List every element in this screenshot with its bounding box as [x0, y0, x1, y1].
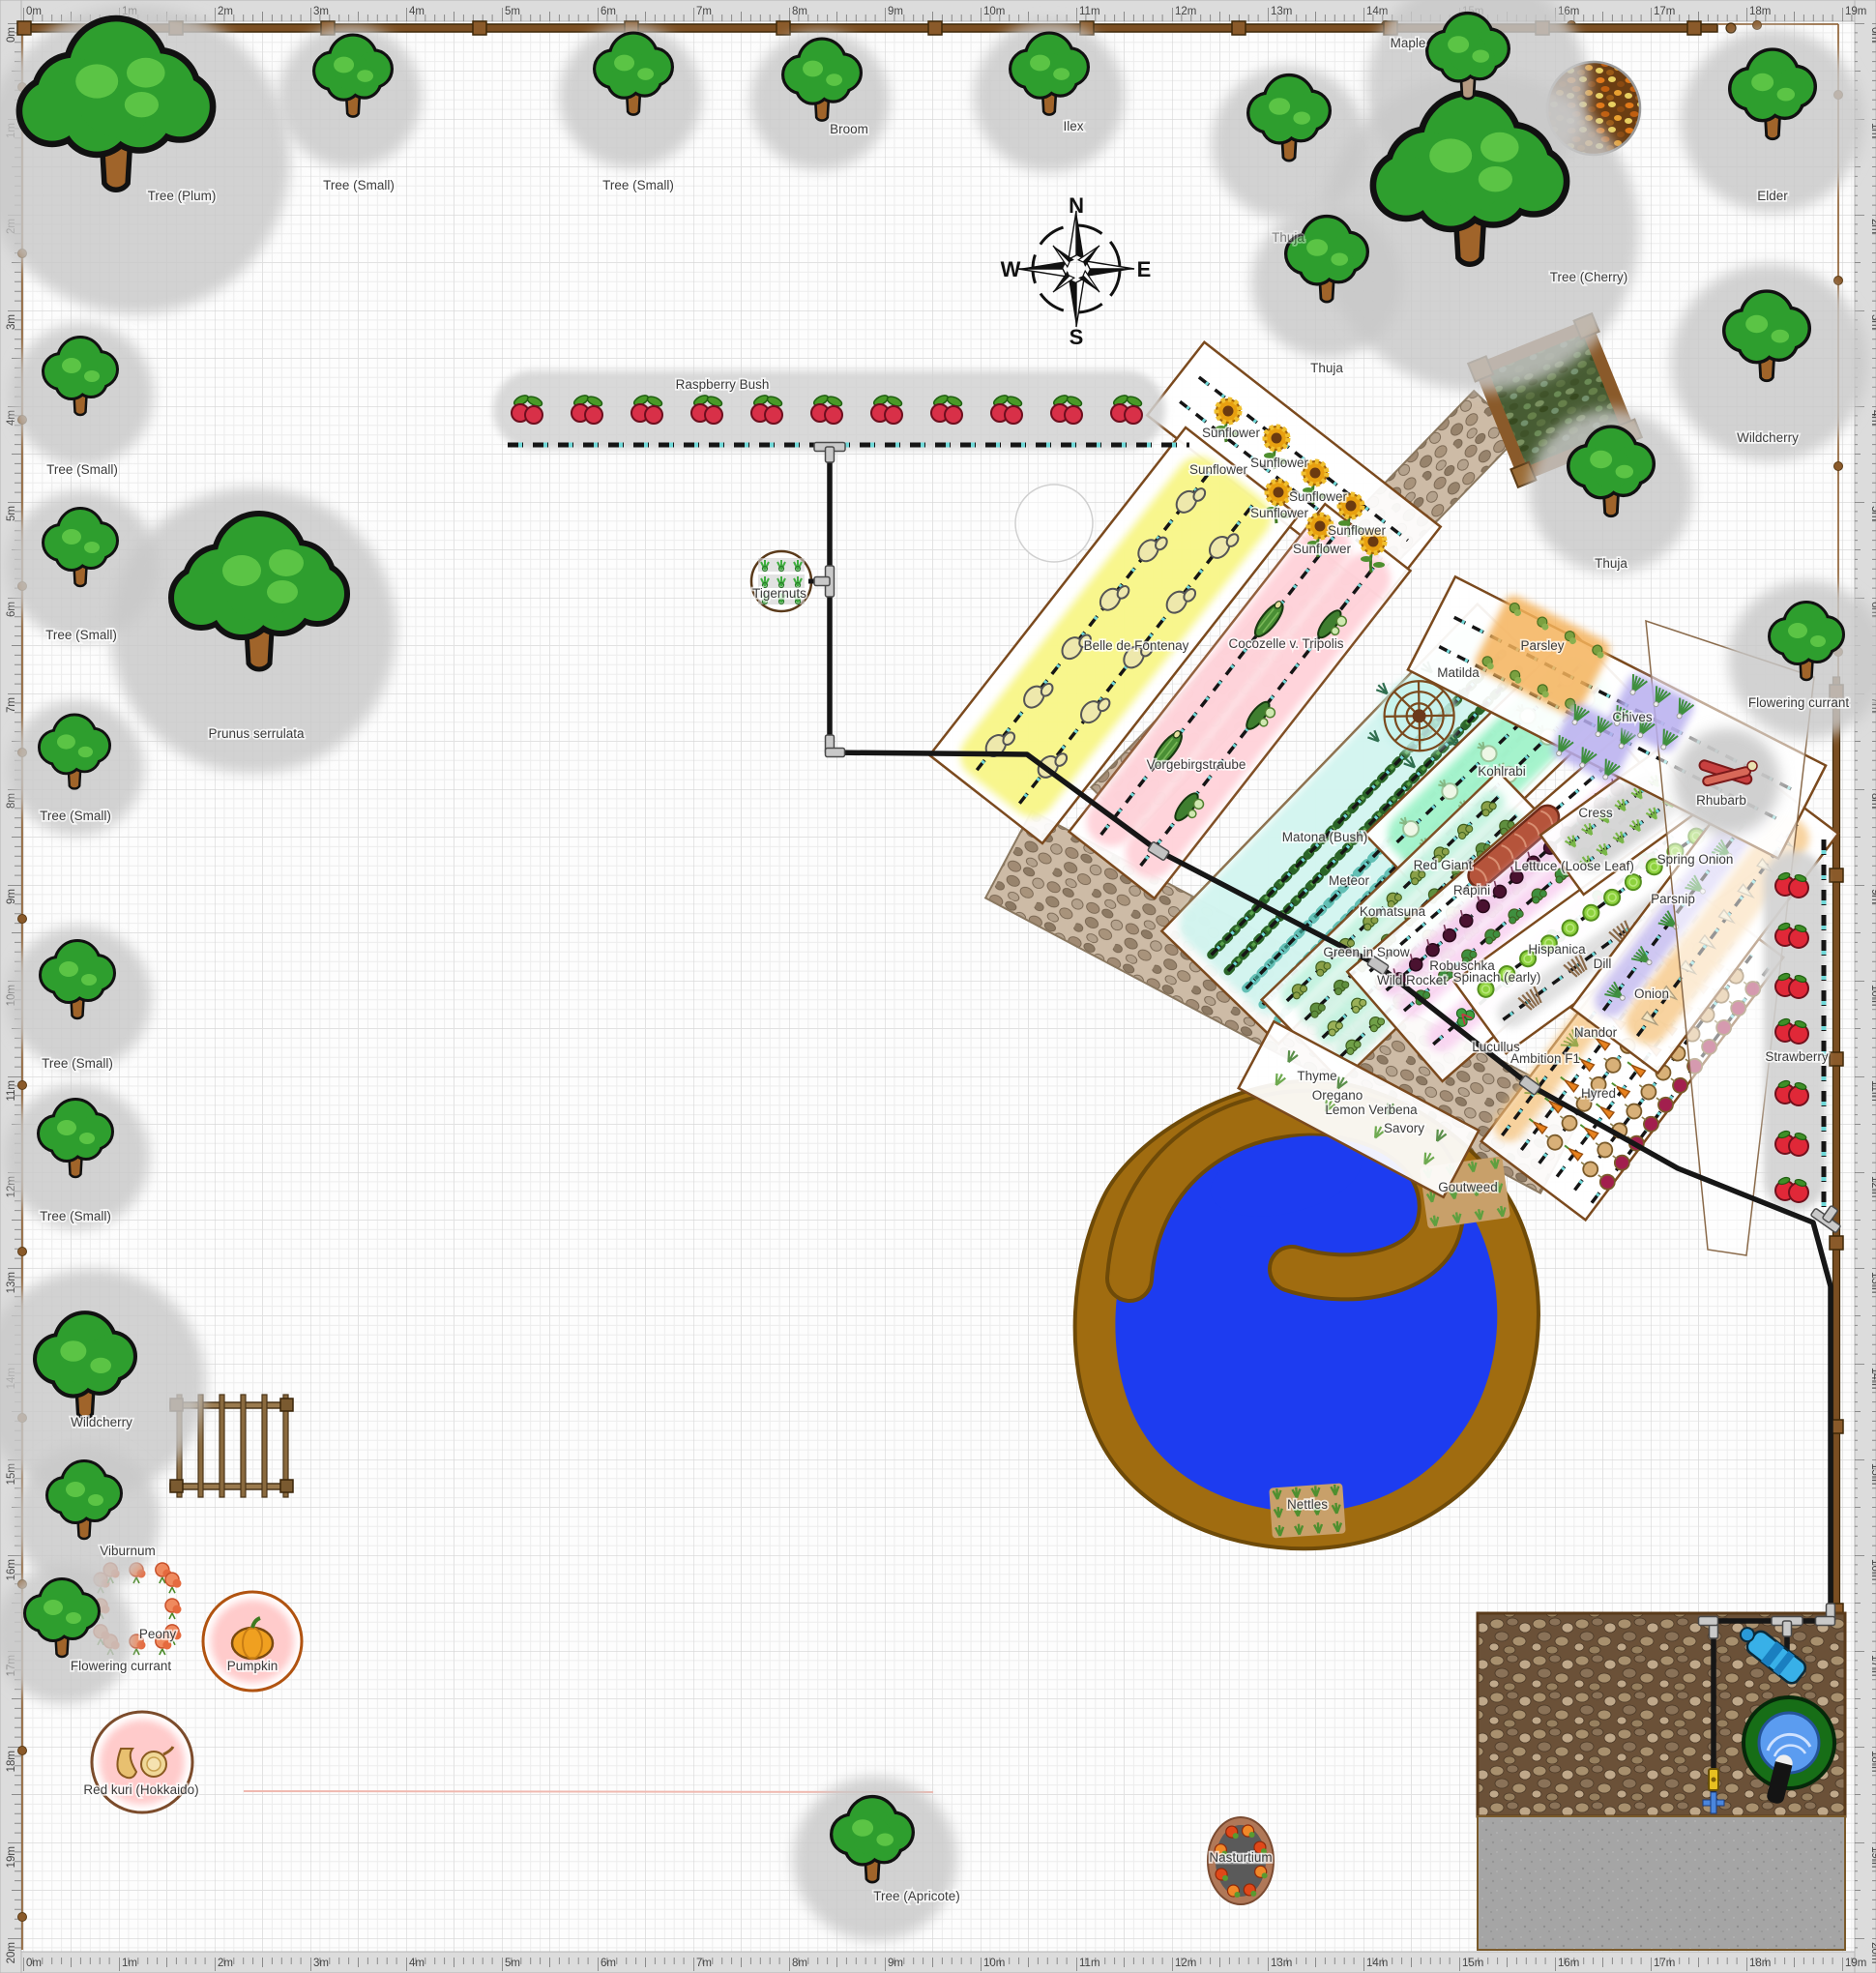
- plan-label: Ilex: [1063, 119, 1083, 133]
- plan-label: Sunflower: [1202, 426, 1261, 440]
- plan-label: Ambition F1: [1510, 1051, 1580, 1066]
- plan-label: Chives: [1612, 710, 1653, 724]
- svg-text:11m: 11m: [6, 1080, 17, 1102]
- plan-label: Thyme: [1297, 1069, 1336, 1083]
- plan-label: Wildcherry: [1737, 430, 1799, 445]
- pumpkin-circle[interactable]: [203, 1592, 302, 1691]
- svg-text:17m: 17m: [1654, 1958, 1675, 1969]
- svg-text:20m: 20m: [1869, 1942, 1876, 1963]
- plan-label: Thuja: [1310, 361, 1343, 375]
- plan-label: Meteor: [1329, 873, 1370, 888]
- svg-text:6m: 6m: [6, 602, 17, 617]
- svg-text:20m: 20m: [6, 1942, 17, 1963]
- plan-label: Thuja: [1272, 230, 1304, 245]
- svg-text:12m: 12m: [1869, 1176, 1876, 1197]
- svg-text:19m: 19m: [1845, 6, 1866, 17]
- plan-label: Komatsuna: [1360, 904, 1426, 919]
- svg-text:7m: 7m: [6, 697, 17, 713]
- svg-text:W: W: [1001, 257, 1021, 281]
- tigernuts-circle[interactable]: [751, 551, 811, 611]
- svg-text:3m: 3m: [313, 6, 329, 17]
- svg-text:19m: 19m: [1845, 1958, 1866, 1969]
- garden-plan: 0m1m2m3m4m5m6m7m8m9m10m11m12m13m14m15m16…: [0, 0, 1876, 1973]
- plan-label: Spring Onion: [1657, 852, 1734, 867]
- plan-label: Viburnum: [100, 1544, 156, 1558]
- svg-text:18m: 18m: [1869, 1751, 1876, 1772]
- svg-text:7m: 7m: [696, 1958, 712, 1969]
- plan-label: Tree (Plum): [148, 189, 217, 203]
- plan-label: Tree (Small): [45, 628, 117, 642]
- plan-label: Sunflower: [1289, 489, 1348, 504]
- rhubarb[interactable]: [1674, 728, 1780, 835]
- plan-label: Cress: [1578, 806, 1613, 820]
- svg-text:9m: 9m: [1869, 889, 1876, 904]
- svg-text:5m: 5m: [6, 506, 17, 521]
- svg-text:10m: 10m: [983, 6, 1005, 17]
- svg-text:13m: 13m: [6, 1272, 17, 1293]
- plan-label: Savory: [1384, 1121, 1424, 1135]
- svg-text:16m: 16m: [1558, 1958, 1579, 1969]
- strawberry-row[interactable]: [1764, 851, 1826, 1211]
- plan-label: Matilda: [1437, 665, 1480, 680]
- svg-text:11m: 11m: [1079, 1958, 1100, 1969]
- plan-label: Rapini: [1453, 883, 1490, 898]
- svg-text:13m: 13m: [1869, 1272, 1876, 1293]
- svg-text:S: S: [1070, 325, 1084, 349]
- svg-text:13m: 13m: [1271, 1958, 1292, 1969]
- svg-text:14m: 14m: [1869, 1368, 1876, 1389]
- svg-text:6m: 6m: [601, 1958, 616, 1969]
- plan-label: Vorgebirgstraube: [1147, 757, 1246, 772]
- svg-text:1m: 1m: [1869, 123, 1876, 138]
- svg-text:N: N: [1069, 193, 1084, 218]
- plan-label: Oregano: [1312, 1088, 1363, 1103]
- svg-text:8m: 8m: [792, 1958, 807, 1969]
- plan-label: Matona (Bush): [1282, 830, 1368, 844]
- plan-label: Dill: [1594, 957, 1612, 971]
- svg-text:8m: 8m: [1869, 793, 1876, 809]
- svg-text:12m: 12m: [1175, 1958, 1196, 1969]
- plan-label: Prunus serrulata: [208, 726, 305, 741]
- plan-label: Wild Rocket: [1377, 973, 1447, 987]
- svg-text:17m: 17m: [1654, 6, 1675, 17]
- plan-label: Broom: [830, 122, 868, 136]
- svg-text:6m: 6m: [601, 6, 616, 17]
- svg-text:0m: 0m: [26, 1958, 42, 1969]
- svg-text:9m: 9m: [888, 6, 903, 17]
- svg-text:2m: 2m: [218, 1958, 233, 1969]
- plan-label: Sunflower: [1250, 506, 1309, 520]
- plan-label: Peony: [139, 1627, 177, 1641]
- plan-label: Green in Snow: [1323, 945, 1410, 959]
- svg-text:2m: 2m: [218, 6, 233, 17]
- svg-text:19m: 19m: [1869, 1846, 1876, 1868]
- plan-label: Lettuce (Loose Leaf): [1514, 859, 1634, 873]
- svg-text:3m: 3m: [1869, 314, 1876, 330]
- plan-label: Tree (Small): [42, 1056, 113, 1071]
- svg-text:18m: 18m: [1749, 1958, 1771, 1969]
- svg-text:4m: 4m: [1869, 410, 1876, 426]
- plan-label: Tree (Small): [323, 178, 395, 192]
- svg-text:13m: 13m: [1271, 6, 1292, 17]
- svg-text:E: E: [1137, 257, 1152, 281]
- svg-text:14m: 14m: [1366, 6, 1388, 17]
- plan-label: Tree (Apricote): [873, 1889, 960, 1903]
- plan-label: Onion: [1634, 986, 1669, 1001]
- plan-label: Maple: [1391, 36, 1426, 50]
- plan-label: Sunflower: [1328, 523, 1387, 538]
- plan-label: Hyred: [1581, 1086, 1616, 1101]
- svg-text:0m: 0m: [6, 27, 17, 43]
- svg-text:5m: 5m: [1869, 506, 1876, 521]
- concrete-slab[interactable]: [1478, 1816, 1845, 1950]
- plan-label: Nandor: [1574, 1025, 1618, 1040]
- svg-text:14m: 14m: [1366, 1958, 1388, 1969]
- svg-text:3m: 3m: [6, 314, 17, 330]
- svg-text:1m: 1m: [122, 1958, 137, 1969]
- svg-text:15m: 15m: [1869, 1463, 1876, 1485]
- plan-label: Nettles: [1287, 1497, 1328, 1512]
- svg-text:16m: 16m: [6, 1559, 17, 1580]
- svg-text:11m: 11m: [1869, 1080, 1876, 1102]
- plan-label: Lemon Verbena: [1325, 1103, 1418, 1117]
- svg-text:18m: 18m: [1749, 6, 1771, 17]
- svg-text:0m: 0m: [26, 6, 42, 17]
- svg-text:9m: 9m: [888, 1958, 903, 1969]
- plan-label: Elder: [1757, 189, 1788, 203]
- plan-label: Kohlrabi: [1478, 764, 1526, 779]
- svg-text:3m: 3m: [313, 1958, 329, 1969]
- plan-label: Tree (Small): [602, 178, 674, 192]
- plan-label: Red Giant: [1414, 858, 1473, 872]
- svg-text:8m: 8m: [792, 6, 807, 17]
- plan-label: Hispanica: [1528, 942, 1586, 957]
- svg-text:17m: 17m: [1869, 1655, 1876, 1676]
- plan-label: Tree (Small): [40, 809, 111, 823]
- svg-text:19m: 19m: [6, 1846, 17, 1868]
- plan-label: Flowering currant: [1748, 695, 1850, 710]
- svg-text:18m: 18m: [6, 1751, 17, 1772]
- plan-label: Sunflower: [1293, 542, 1352, 556]
- plan-label: Pumpkin: [227, 1659, 278, 1673]
- svg-text:2m: 2m: [1869, 219, 1876, 234]
- svg-text:7m: 7m: [696, 6, 712, 17]
- plan-label: Rhubarb: [1696, 793, 1746, 808]
- faint-circle: [1015, 485, 1093, 562]
- plan-label: Tigernuts: [752, 586, 806, 601]
- plan-label: Spinach (early): [1453, 970, 1541, 985]
- plan-label: Tree (Cherry): [1550, 270, 1628, 284]
- plan-label: Goutweed: [1438, 1180, 1498, 1194]
- plan-label: Flowering currant: [71, 1659, 172, 1673]
- garden-plan-canvas: 0m1m2m3m4m5m6m7m8m9m10m11m12m13m14m15m16…: [0, 0, 1876, 1973]
- svg-text:5m: 5m: [505, 6, 520, 17]
- svg-text:4m: 4m: [409, 1958, 425, 1969]
- plan-label: Strawberry: [1765, 1049, 1829, 1064]
- plan-label: Wildcherry: [71, 1415, 132, 1429]
- plan-label: Parsley: [1520, 638, 1564, 653]
- plan-label: Raspberry Bush: [676, 377, 770, 392]
- svg-text:9m: 9m: [6, 889, 17, 904]
- svg-text:4m: 4m: [409, 6, 425, 17]
- svg-text:15m: 15m: [1462, 1958, 1483, 1969]
- svg-text:10m: 10m: [983, 1958, 1005, 1969]
- svg-text:11m: 11m: [1079, 6, 1100, 17]
- plan-label: Tree (Small): [40, 1209, 111, 1223]
- plan-label: Nasturtium: [1209, 1850, 1272, 1865]
- svg-text:16m: 16m: [1869, 1559, 1876, 1580]
- svg-text:10m: 10m: [1869, 985, 1876, 1006]
- plan-label: Thuja: [1595, 556, 1627, 571]
- plan-label: Sunflower: [1250, 456, 1309, 470]
- plan-label: Sunflower: [1189, 462, 1248, 477]
- plan-label: Red kuri (Hokkaido): [83, 1782, 198, 1797]
- raspberry-bush-row[interactable]: [493, 370, 1165, 450]
- plan-label: Parsnip: [1651, 892, 1695, 906]
- svg-text:12m: 12m: [1175, 6, 1196, 17]
- plan-label: Cocozelle v. Tripolis: [1228, 636, 1343, 651]
- plan-label: Tree (Small): [46, 462, 118, 477]
- red-kuri-circle[interactable]: [92, 1712, 192, 1812]
- svg-text:5m: 5m: [505, 1958, 520, 1969]
- plan-label: Belle de Fontenay: [1084, 638, 1189, 653]
- svg-text:0m: 0m: [1869, 27, 1876, 43]
